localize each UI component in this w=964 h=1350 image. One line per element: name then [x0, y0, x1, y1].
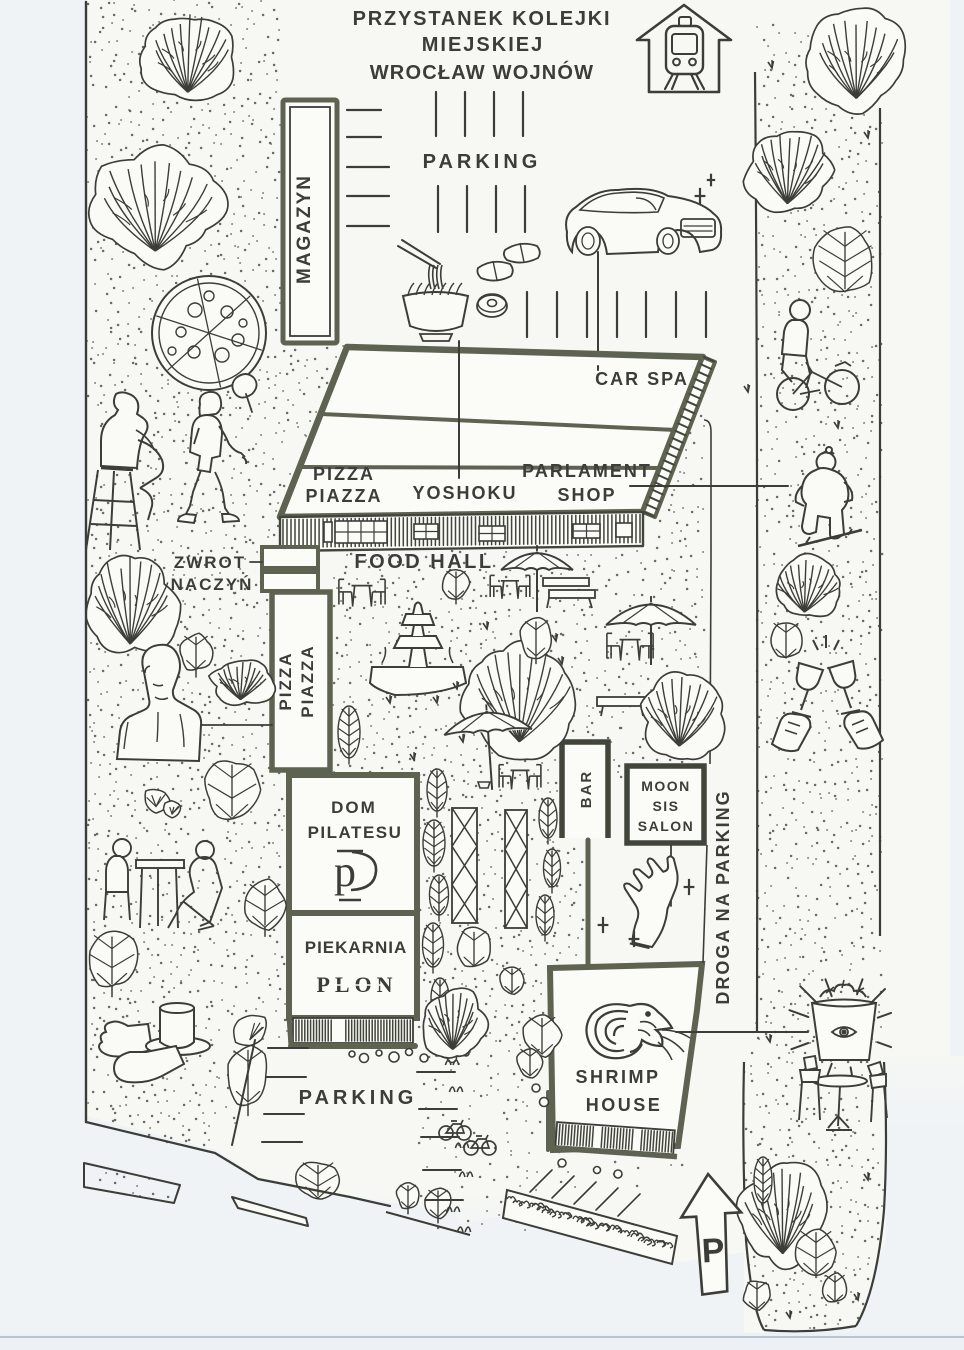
svg-text:PIEKARNIA: PIEKARNIA	[305, 938, 408, 957]
svg-text:PIAZZA: PIAZZA	[306, 486, 383, 506]
svg-text:PIZZA: PIZZA	[313, 464, 375, 484]
svg-text:MOON: MOON	[641, 778, 691, 794]
svg-text:NACZYŃ: NACZYŃ	[171, 575, 254, 594]
svg-text:FOOD HALL: FOOD HALL	[354, 551, 493, 573]
svg-text:PILATESU: PILATESU	[308, 823, 403, 842]
svg-text:SIS: SIS	[652, 798, 679, 814]
svg-text:P: P	[701, 1231, 726, 1270]
svg-text:MAGAZYN: MAGAZYN	[294, 174, 315, 284]
svg-text:SALON: SALON	[638, 818, 695, 834]
svg-text:MIEJSKIEJ: MIEJSKIEJ	[422, 34, 544, 56]
svg-text:ZWROT: ZWROT	[174, 553, 246, 572]
svg-text:PARKING: PARKING	[299, 1087, 418, 1109]
svg-text:DROGA NA PARKING: DROGA NA PARKING	[713, 789, 733, 1004]
svg-text:CAR SPA: CAR SPA	[595, 369, 689, 389]
svg-text:BAR: BAR	[578, 770, 595, 809]
svg-text:PARLAMENT: PARLAMENT	[522, 461, 652, 481]
svg-text:HOUSE: HOUSE	[586, 1095, 663, 1115]
svg-text:PIAZZA: PIAZZA	[298, 644, 317, 717]
svg-text:SHOP: SHOP	[557, 485, 616, 505]
svg-text:YOSHOKU: YOSHOKU	[412, 483, 517, 503]
svg-text:PARKING: PARKING	[423, 151, 542, 173]
svg-text:PIZZA: PIZZA	[276, 651, 295, 710]
svg-text:PRZYSTANEK KOLEJKI: PRZYSTANEK KOLEJKI	[353, 8, 612, 30]
svg-text:DOM: DOM	[331, 798, 377, 817]
svg-text:p: p	[334, 847, 356, 896]
svg-text:SHRIMP: SHRIMP	[575, 1067, 660, 1087]
svg-text:WROCŁAW WOJNÓW: WROCŁAW WOJNÓW	[370, 60, 595, 84]
